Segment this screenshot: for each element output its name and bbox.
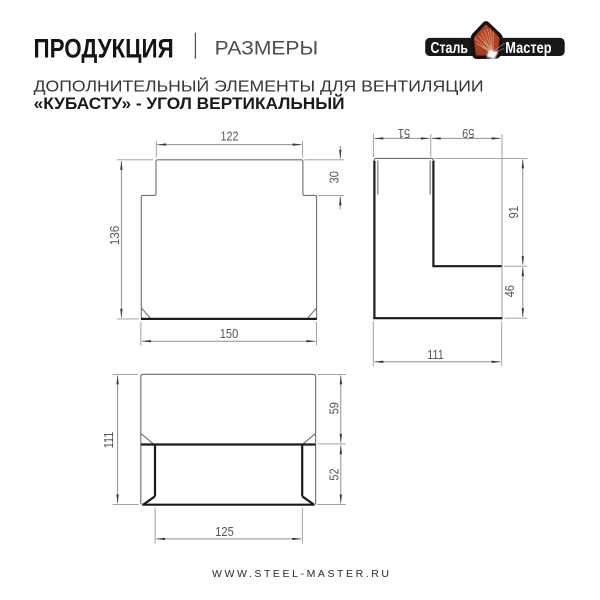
svg-text:122: 122	[221, 129, 239, 144]
svg-text:59: 59	[327, 402, 342, 414]
svg-text:«КУБАСТУ» - УГОЛ ВЕРТИКАЛЬНЫЙ: «КУБАСТУ» - УГОЛ ВЕРТИКАЛЬНЫЙ	[34, 94, 345, 113]
svg-text:51: 51	[398, 126, 410, 141]
svg-text:WWW.STEEL-MASTER.RU: WWW.STEEL-MASTER.RU	[212, 568, 389, 580]
svg-text:Мастер: Мастер	[505, 40, 551, 57]
svg-text:59: 59	[462, 126, 474, 141]
svg-text:52: 52	[327, 468, 342, 480]
svg-text:111: 111	[101, 432, 116, 449]
svg-text:136: 136	[107, 226, 122, 246]
svg-text:30: 30	[327, 171, 342, 183]
svg-text:ПРОДУКЦИЯ: ПРОДУКЦИЯ	[34, 34, 174, 64]
svg-text:91: 91	[506, 206, 521, 218]
svg-text:РАЗМЕРЫ: РАЗМЕРЫ	[215, 39, 318, 60]
svg-text:46: 46	[502, 285, 517, 297]
svg-text:111: 111	[427, 347, 444, 362]
svg-text:150: 150	[220, 326, 239, 341]
svg-text:ДОПОЛНИТЕЛЬНЫЙ ЭЛЕМЕНТЫ ДЛЯ ВЕ: ДОПОЛНИТЕЛЬНЫЙ ЭЛЕМЕНТЫ ДЛЯ ВЕНТИЛЯЦИИ	[34, 77, 484, 96]
svg-text:Сталь: Сталь	[431, 40, 469, 57]
svg-text:125: 125	[215, 524, 234, 539]
